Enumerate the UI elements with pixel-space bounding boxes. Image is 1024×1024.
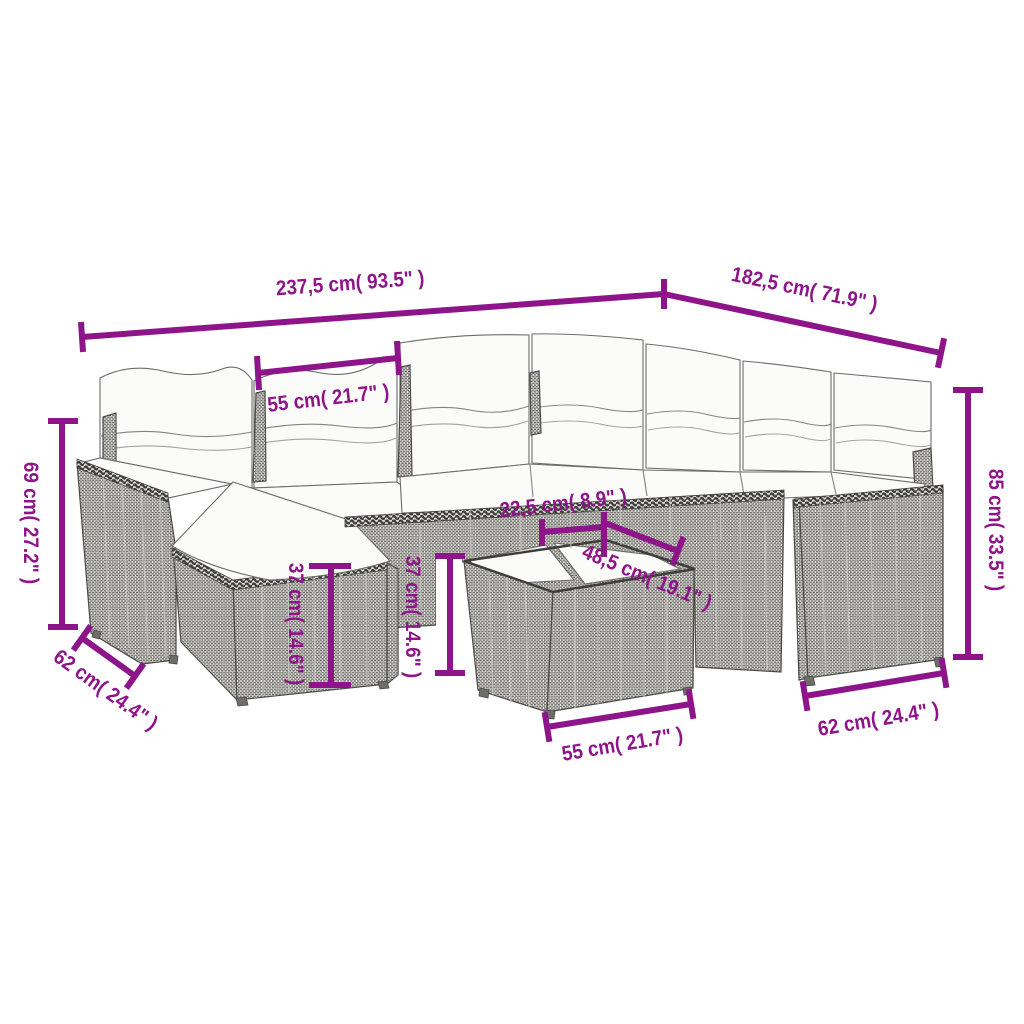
svg-text:69 cm( 27.2" ): 69 cm( 27.2" ) <box>19 462 42 584</box>
svg-text:37 cm( 14.6" ): 37 cm( 14.6" ) <box>284 563 307 685</box>
svg-text:85 cm( 33.5" ): 85 cm( 33.5" ) <box>984 469 1007 591</box>
svg-text:37 cm( 14.6" ): 37 cm( 14.6" ) <box>401 556 424 678</box>
